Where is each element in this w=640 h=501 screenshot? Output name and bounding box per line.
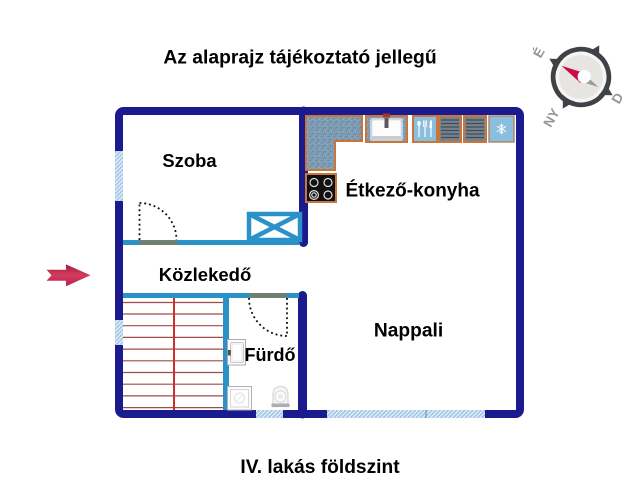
svg-text:Az alaprajz tájékoztató jelleg: Az alaprajz tájékoztató jellegű [163,48,436,69]
svg-text:Szoba: Szoba [162,150,217,171]
svg-text:Fürdő: Fürdő [245,345,296,365]
svg-text:Nappali: Nappali [374,321,443,342]
svg-text:Közlekedő: Közlekedő [159,264,252,285]
svg-text:Étkező-konyha: Étkező-konyha [345,180,480,202]
svg-text:IV. lakás földszint: IV. lakás földszint [240,457,400,478]
